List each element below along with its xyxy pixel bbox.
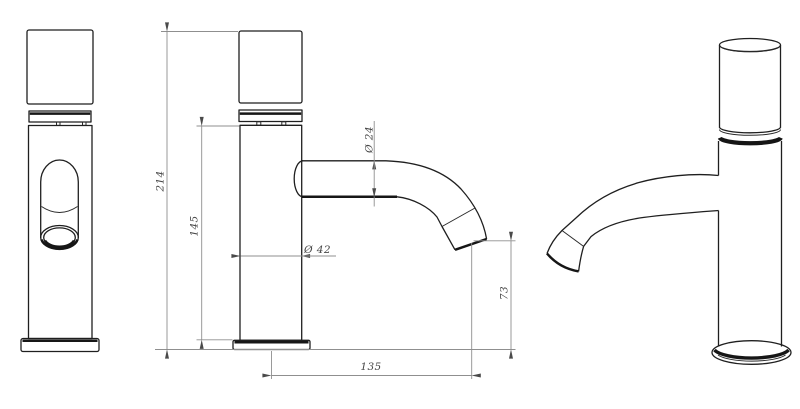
- front-handle-outline: [27, 30, 93, 104]
- dim-outlet-clearance: 73: [474, 241, 516, 350]
- dim-73-label: 73: [499, 286, 511, 300]
- persp-base-dark-band: [715, 350, 789, 358]
- front-spout-silhouette: [41, 160, 79, 238]
- persp-handle-bottom-arc: [720, 127, 781, 133]
- dim-214-label: 214: [155, 170, 167, 192]
- perspective-view: [547, 39, 791, 365]
- front-view: [21, 30, 99, 352]
- side-spout-top-edge: [302, 161, 487, 239]
- dim-24-label: Ø 24: [364, 126, 376, 154]
- technical-drawing-sheet: 214 145 Ø 42 Ø 24 73: [0, 0, 800, 409]
- front-body-outline: [29, 126, 93, 339]
- dim-spout-height: 145: [189, 126, 240, 340]
- side-collar-outline: [239, 110, 302, 122]
- side-handle-outline: [239, 31, 302, 103]
- persp-aerator-seam: [562, 231, 584, 247]
- persp-dark-ring: [720, 138, 781, 143]
- side-aerator-seam: [442, 208, 475, 227]
- dim-spout-diameter: Ø 24: [364, 121, 376, 207]
- side-view: [233, 31, 487, 350]
- side-spout-inner-curve: [397, 197, 455, 250]
- dim-body-diameter: Ø 42: [241, 244, 337, 256]
- dim-total-height: 214: [155, 32, 239, 350]
- front-spout-seam-arc: [42, 207, 78, 213]
- side-body-outline: [240, 125, 302, 340]
- front-outlet-inner-shadow: [45, 241, 74, 247]
- dim-145-label: 145: [189, 215, 201, 236]
- persp-spout-inner-edge: [579, 211, 719, 272]
- persp-outlet-face: [547, 254, 579, 272]
- faucet-drawing: 214 145 Ø 42 Ø 24 73: [0, 0, 800, 409]
- dim-135-label: 135: [360, 361, 381, 373]
- dimension-annotations: 214 145 Ø 42 Ø 24 73: [155, 32, 516, 380]
- dim-42-label: Ø 42: [303, 244, 331, 256]
- persp-spout-outer-edge: [547, 175, 719, 254]
